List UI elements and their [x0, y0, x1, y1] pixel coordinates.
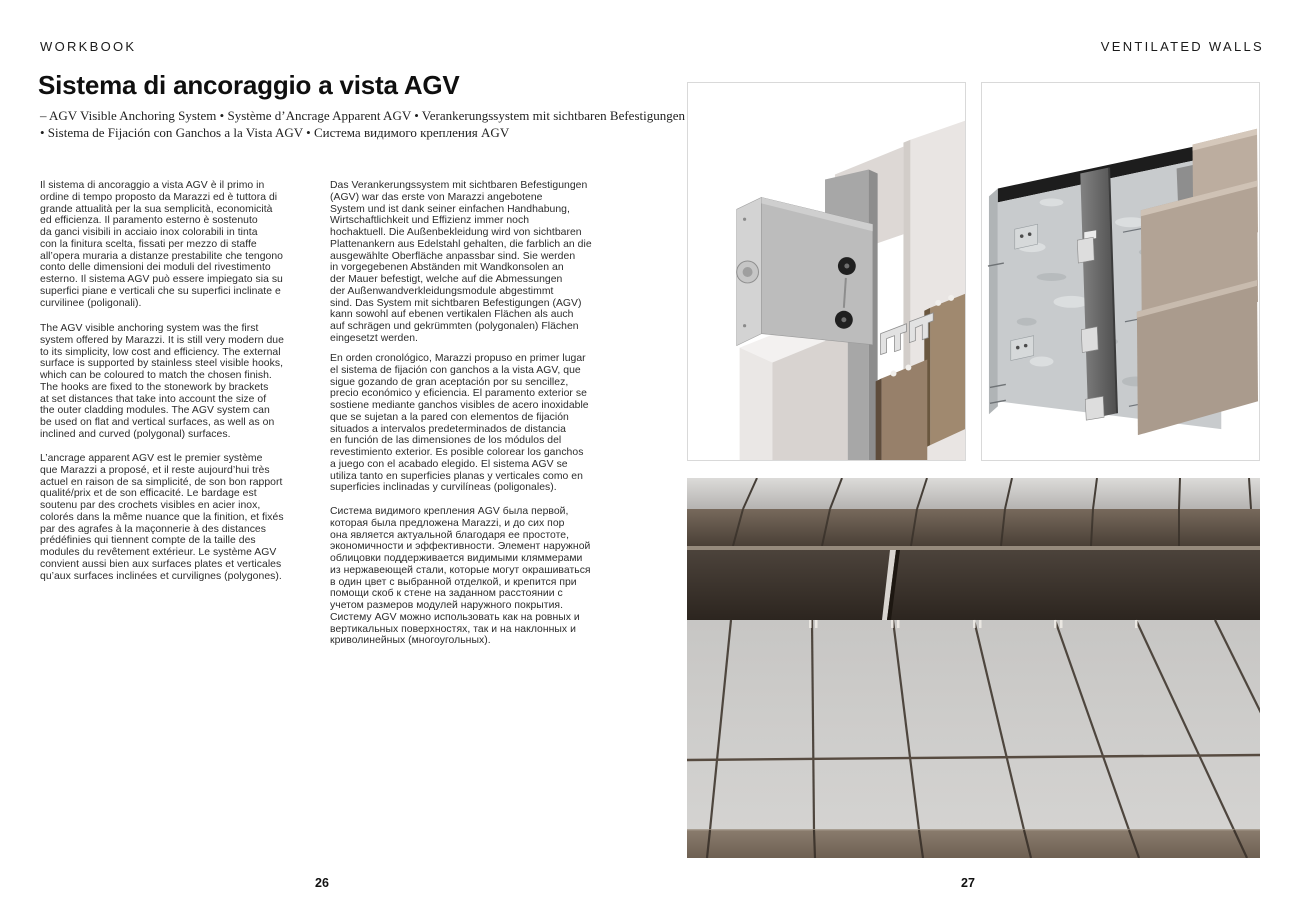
- running-header-left: WORKBOOK: [40, 39, 136, 54]
- workbook-spread-page: WORKBOOK VENTILATED WALLS Sistema di anc…: [0, 0, 1291, 920]
- paragraph-russian: Система видимого крепления AGV была перв…: [330, 506, 628, 647]
- title-translations-line2: • Sistema de Fijación con Ganchos a la V…: [40, 125, 716, 142]
- title-translations-line1: – AGV Visible Anchoring System • Système…: [40, 108, 716, 125]
- figure-exploded-view: [981, 82, 1260, 461]
- title-translations: – AGV Visible Anchoring System • Système…: [40, 108, 716, 141]
- paragraph-english: The AGV visible anchoring system was the…: [40, 323, 338, 441]
- facade-photo-illustration: [687, 478, 1260, 858]
- page-number-left: 26: [306, 876, 338, 890]
- paragraph-italian: Il sistema di ancoraggio a vista AGV è i…: [40, 180, 338, 309]
- running-header-right: VENTILATED WALLS: [1101, 39, 1264, 54]
- figure-bracket-detail: [687, 82, 966, 461]
- page-title: Sistema di ancoraggio a vista AGV: [38, 70, 460, 101]
- page-number-right: 27: [952, 876, 984, 890]
- tile-field: [687, 620, 1260, 830]
- paragraph-german: Das Verankerungssystem mit sichtbaren Be…: [330, 180, 628, 345]
- paragraph-spanish: En orden cronológico, Marazzi propuso en…: [330, 353, 628, 494]
- exploded-view-illustration: [982, 83, 1259, 460]
- bracket-detail-illustration: [688, 83, 965, 460]
- figure-facade-photo: [687, 478, 1260, 858]
- recess-band: [687, 550, 1260, 620]
- paragraph-french: L’ancrage apparent AGV est le premier sy…: [40, 453, 338, 582]
